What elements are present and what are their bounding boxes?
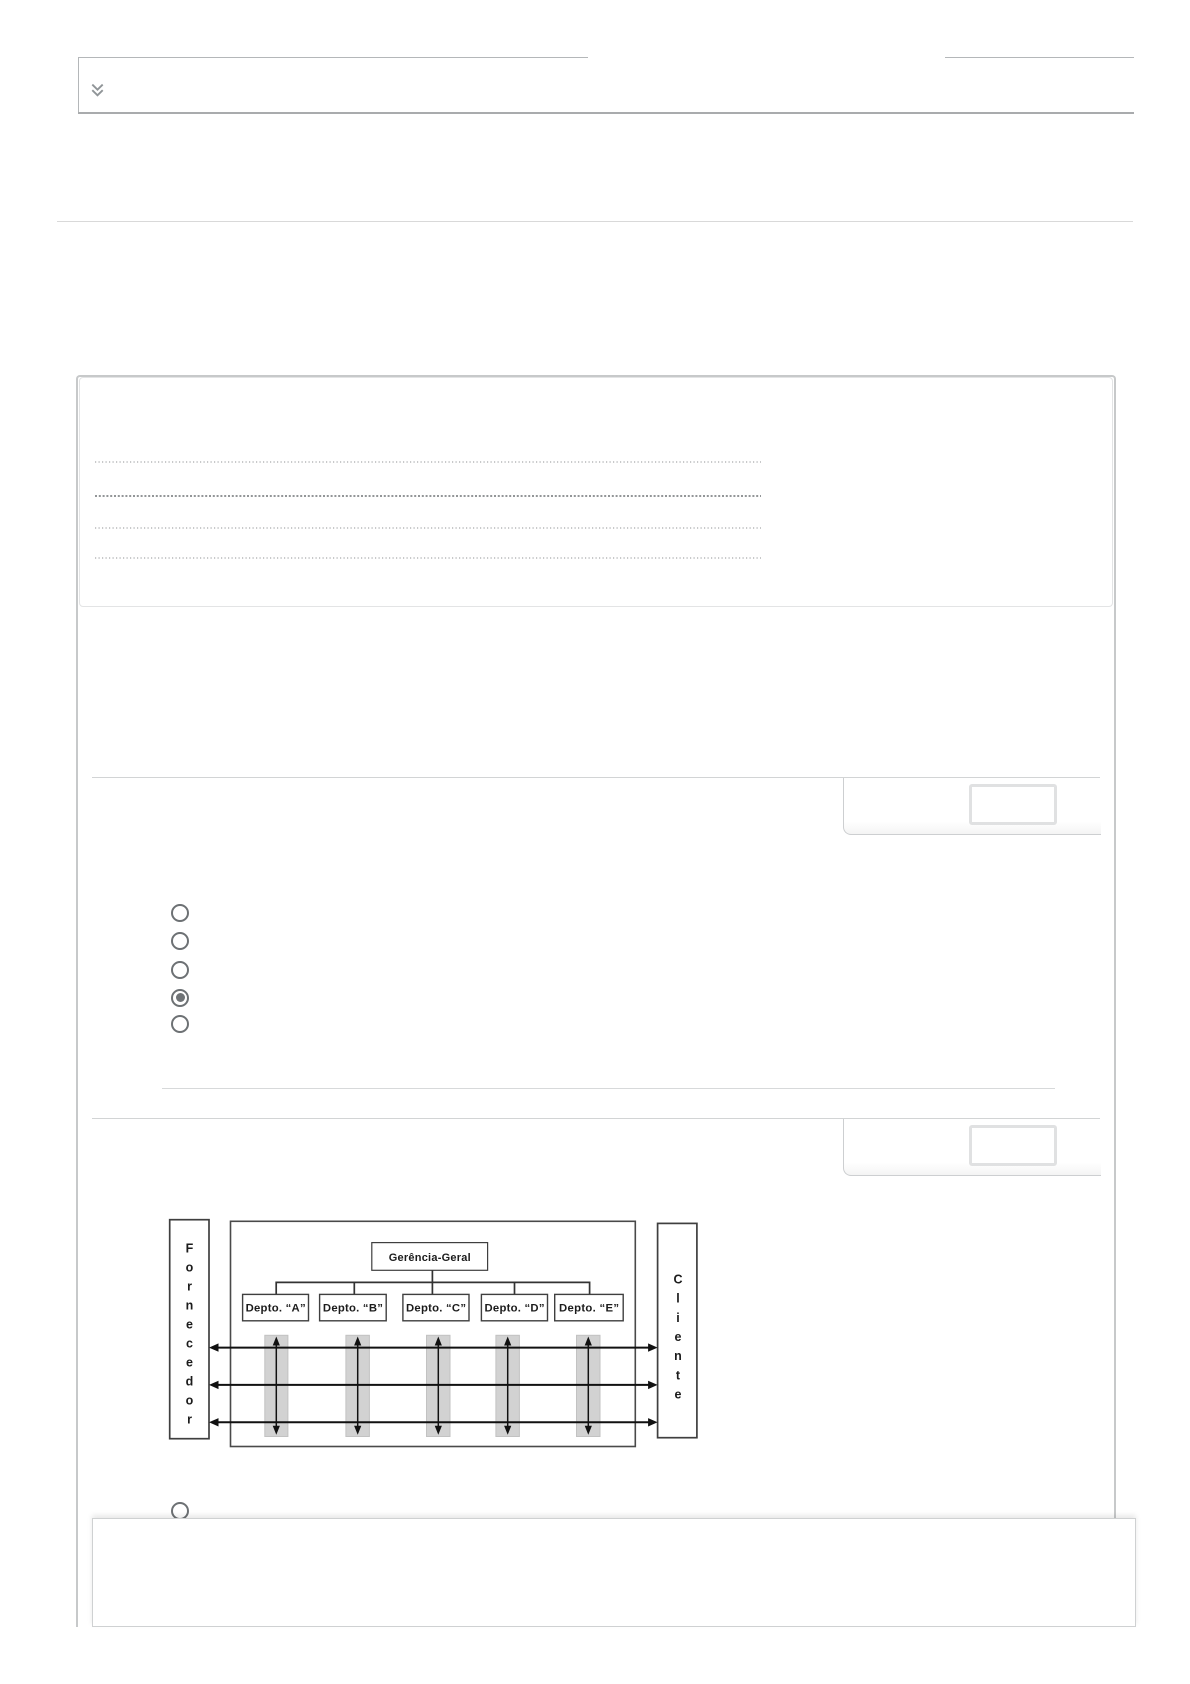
svg-text:r: r [187,1412,192,1426]
svg-text:Depto. “B”: Depto. “B” [323,1303,383,1315]
svg-text:n: n [186,1298,194,1312]
svg-text:o: o [186,1393,194,1407]
svg-text:d: d [186,1374,194,1388]
svg-text:o: o [186,1260,194,1274]
svg-text:Gerência-Geral: Gerência-Geral [389,1252,471,1264]
svg-text:e: e [186,1317,193,1331]
svg-text:c: c [186,1336,193,1350]
svg-text:F: F [186,1241,194,1255]
svg-text:i: i [676,1311,679,1325]
svg-text:r: r [187,1279,192,1293]
svg-text:e: e [675,1330,682,1344]
svg-text:Depto. “E”: Depto. “E” [559,1303,619,1315]
svg-text:Depto. “D”: Depto. “D” [485,1303,545,1315]
svg-text:C: C [673,1272,682,1286]
svg-text:n: n [674,1349,682,1363]
svg-text:Depto. “A”: Depto. “A” [246,1303,306,1315]
svg-text:l: l [676,1292,679,1306]
svg-text:Depto. “C”: Depto. “C” [406,1303,466,1315]
svg-text:e: e [186,1355,193,1369]
svg-text:e: e [675,1388,682,1402]
